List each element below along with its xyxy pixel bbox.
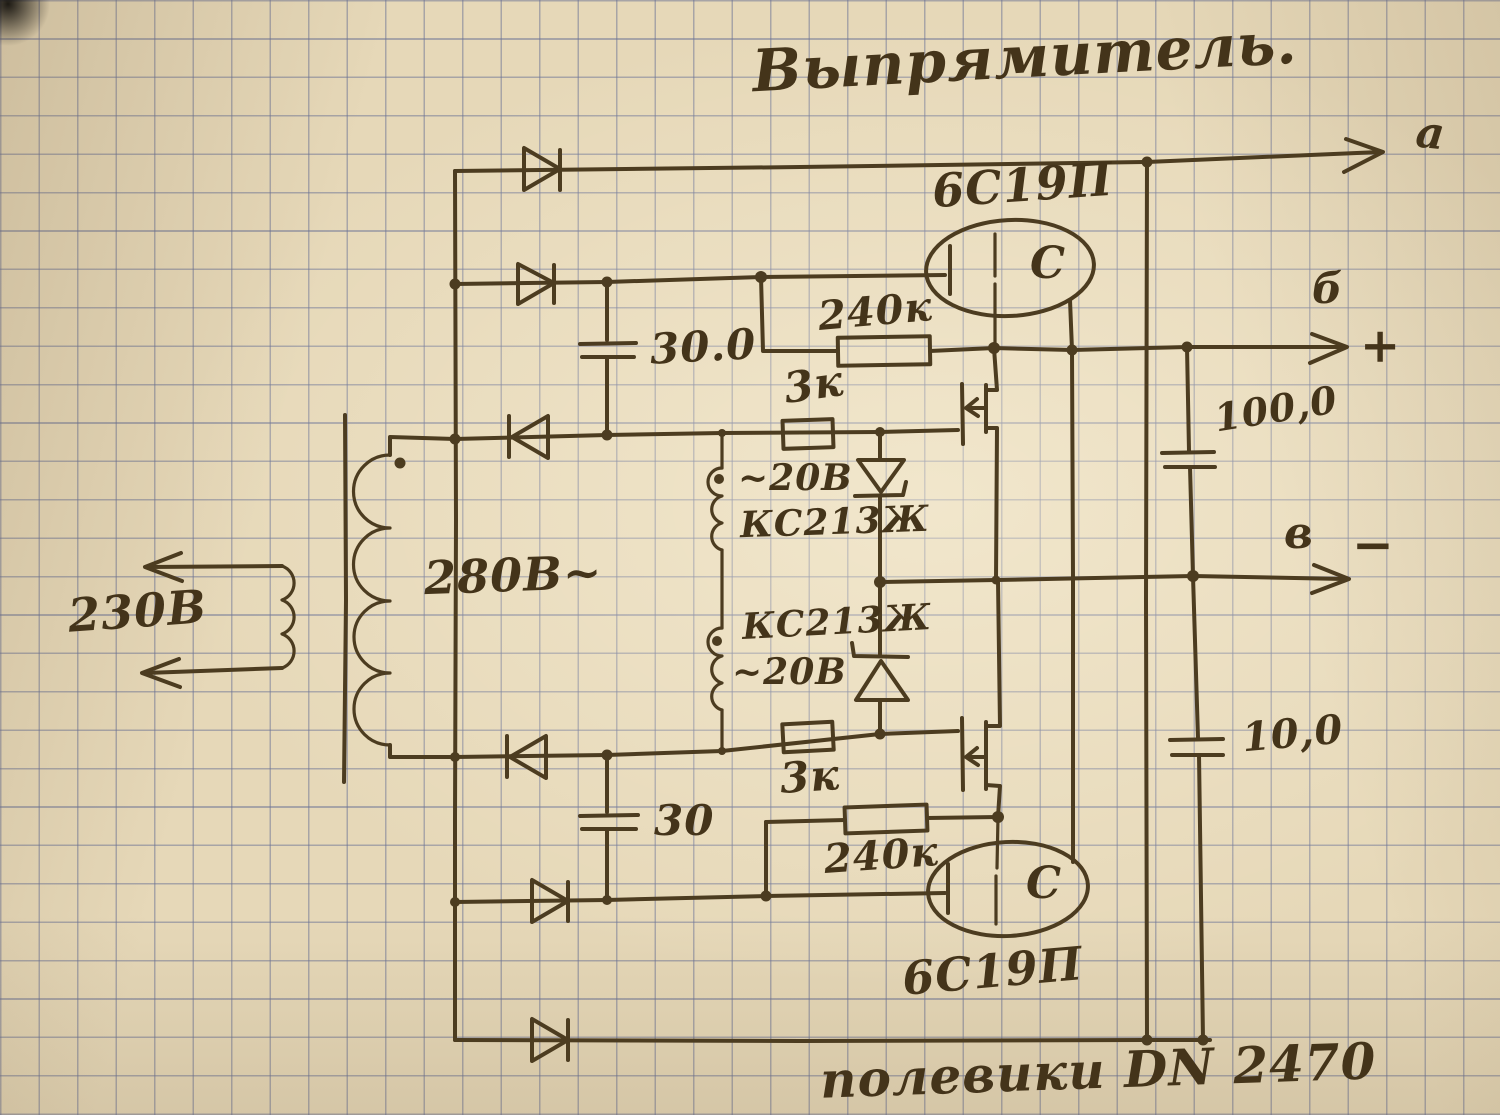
tube-top-electrode-label: С (1030, 242, 1066, 286)
tube-bottom (926, 817, 1091, 940)
tube-bottom-grid-line (996, 817, 998, 924)
schematic-drawing (0, 0, 1500, 1115)
cap-30-top (580, 282, 636, 435)
capacitors (580, 282, 1223, 1040)
heater-top-phase-dot (714, 474, 724, 484)
cap-30-bottom (580, 755, 638, 900)
output-a-label: а (1414, 111, 1448, 158)
output-v-label: в (1284, 512, 1314, 556)
resistor-240k-bottom-label: 240к (823, 832, 940, 880)
heater-bottom-phase-dot (712, 636, 722, 646)
mosfet-top (962, 348, 997, 580)
primary-winding (282, 566, 294, 668)
secondary-winding (354, 455, 391, 745)
cap-100 (1162, 347, 1215, 576)
resistor-240k-top-label: 240к (816, 287, 934, 337)
tube-anode-bus (1070, 300, 1073, 862)
zener-top-type-label: КС213Ж (739, 501, 930, 544)
cap-10-label: 10,0 (1240, 710, 1345, 759)
minus-sign: − (1352, 520, 1395, 570)
tube-bottom-electrode-label: С (1026, 862, 1062, 906)
resistor-3k-bottom (782, 722, 833, 753)
cap-30-top-label: 30.0 (649, 323, 757, 371)
tube-top-type-label: 6С19П (931, 156, 1115, 215)
zener-top-voltage-label: ~20В (738, 460, 853, 496)
cap-30-bottom-label: 30 (654, 800, 714, 842)
resistor-3k-bottom-label: 3к (779, 754, 841, 800)
zener-bottom-voltage-label: ~20В (732, 654, 847, 690)
cap-10 (1170, 576, 1223, 1040)
plus-sign: + (1360, 322, 1401, 370)
secondary-phase-dot (395, 458, 406, 469)
primary-voltage-label: 230В (67, 583, 209, 639)
graph-paper-photo: Выпрямитель. а б + в − 6С19П С 6С19П С 2… (0, 0, 1500, 1115)
resistor-3k-top-label: 3к (781, 360, 846, 410)
secondary-voltage-label: 280В~ (423, 549, 603, 601)
output-b-label: б (1312, 268, 1343, 310)
mosfet-bottom (962, 580, 1000, 817)
zener-bottom-type-label: КС213Ж (741, 599, 932, 645)
rectifier-diodes (507, 148, 568, 1061)
